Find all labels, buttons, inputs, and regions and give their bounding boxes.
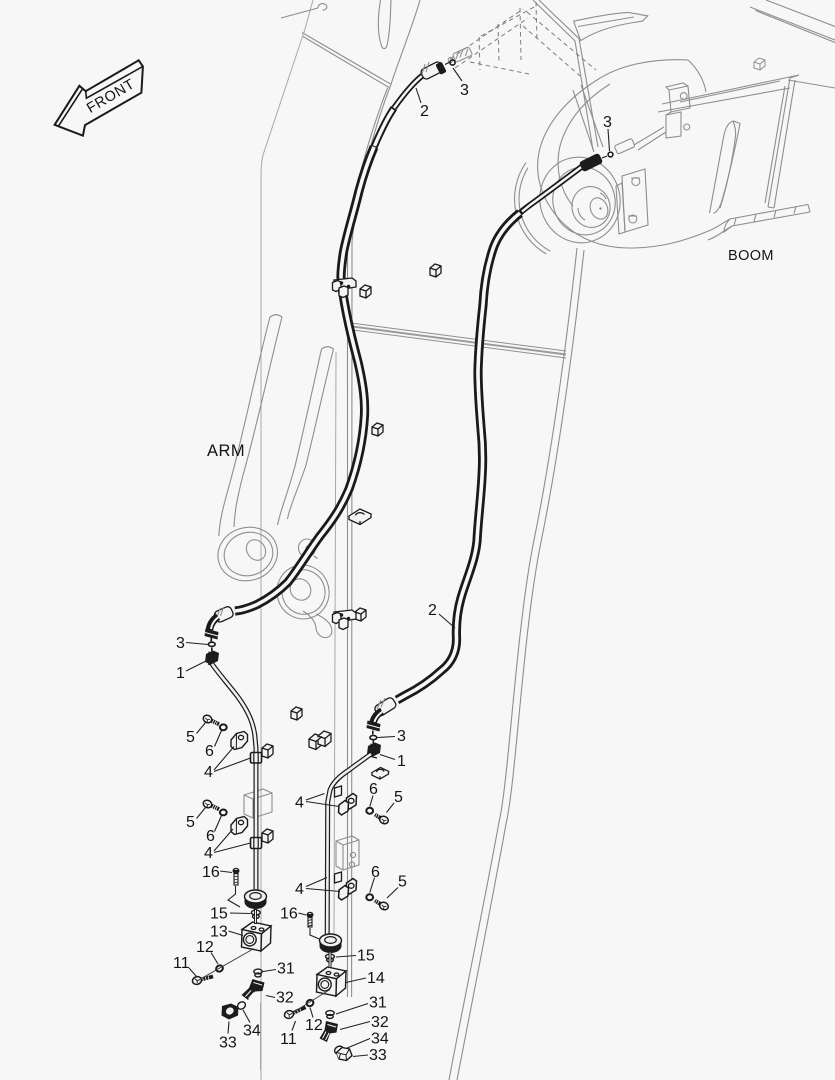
svg-text:16: 16	[280, 906, 298, 923]
svg-text:5: 5	[186, 729, 195, 746]
svg-text:4: 4	[295, 795, 304, 812]
svg-text:3: 3	[397, 728, 406, 745]
svg-text:34: 34	[371, 1031, 389, 1048]
svg-text:13: 13	[210, 924, 228, 941]
svg-text:5: 5	[394, 789, 403, 806]
svg-text:16: 16	[202, 864, 220, 881]
svg-text:ARM: ARM	[207, 442, 245, 460]
svg-text:12: 12	[305, 1017, 323, 1034]
svg-text:6: 6	[206, 828, 215, 845]
svg-text:4: 4	[295, 881, 304, 898]
svg-text:5: 5	[186, 814, 195, 831]
svg-text:14: 14	[367, 970, 385, 987]
svg-text:5: 5	[398, 874, 407, 891]
svg-text:11: 11	[280, 1031, 297, 1048]
svg-text:3: 3	[460, 82, 469, 99]
svg-text:15: 15	[210, 906, 228, 923]
svg-text:32: 32	[371, 1014, 389, 1031]
svg-text:2: 2	[428, 602, 437, 619]
svg-text:11: 11	[173, 955, 190, 972]
svg-text:2: 2	[420, 103, 429, 120]
svg-text:15: 15	[357, 948, 375, 965]
svg-text:6: 6	[205, 743, 214, 760]
svg-text:33: 33	[369, 1047, 387, 1064]
svg-text:33: 33	[219, 1035, 237, 1052]
svg-text:6: 6	[369, 781, 378, 798]
svg-text:32: 32	[276, 990, 294, 1007]
svg-text:3: 3	[603, 114, 612, 131]
svg-text:31: 31	[277, 961, 295, 978]
svg-text:BOOM: BOOM	[728, 248, 774, 264]
svg-text:6: 6	[371, 864, 380, 881]
svg-text:4: 4	[204, 845, 213, 862]
svg-text:4: 4	[204, 764, 213, 781]
svg-text:3: 3	[176, 635, 185, 652]
svg-text:31: 31	[369, 995, 387, 1012]
svg-text:1: 1	[176, 665, 185, 682]
svg-text:1: 1	[397, 753, 406, 770]
svg-text:34: 34	[243, 1023, 261, 1040]
